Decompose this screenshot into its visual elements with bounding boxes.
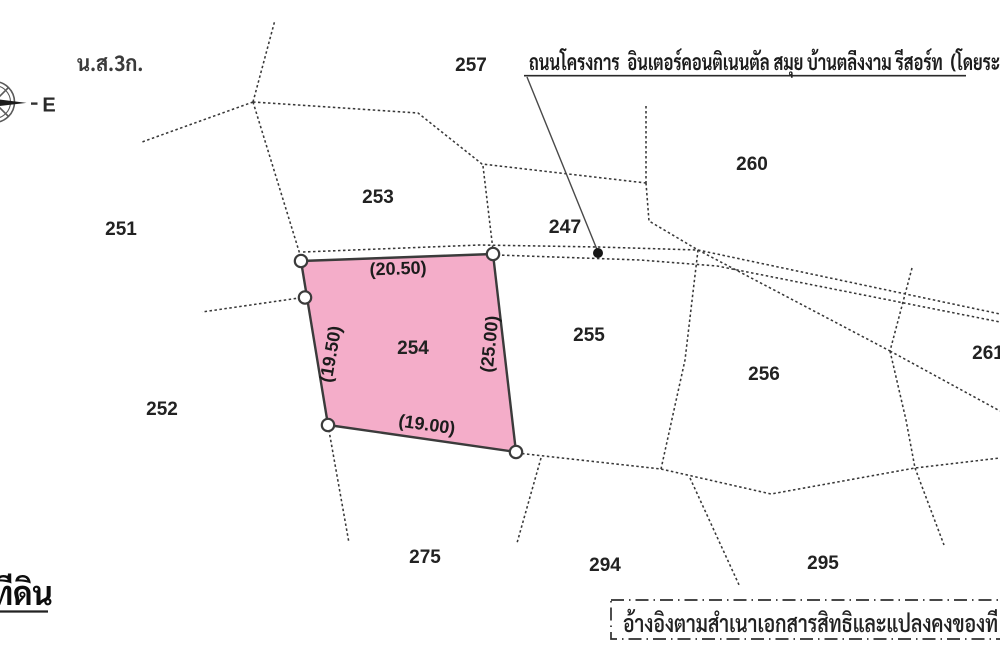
svg-text:294: 294	[589, 555, 621, 576]
svg-text:252: 252	[146, 399, 178, 420]
svg-text:257: 257	[455, 55, 487, 76]
svg-text:(20.50): (20.50)	[369, 258, 427, 280]
svg-text:251: 251	[105, 219, 137, 240]
svg-text:275: 275	[409, 547, 441, 568]
svg-text:295: 295	[807, 553, 839, 574]
svg-text:261: 261	[972, 343, 1000, 364]
svg-text:E: E	[42, 95, 55, 117]
svg-text:256: 256	[748, 364, 780, 385]
svg-text:260: 260	[736, 154, 768, 175]
svg-text:255: 255	[573, 325, 605, 346]
svg-text:247: 247	[549, 216, 582, 238]
svg-text:254: 254	[397, 338, 429, 359]
svg-text:253: 253	[362, 187, 394, 208]
